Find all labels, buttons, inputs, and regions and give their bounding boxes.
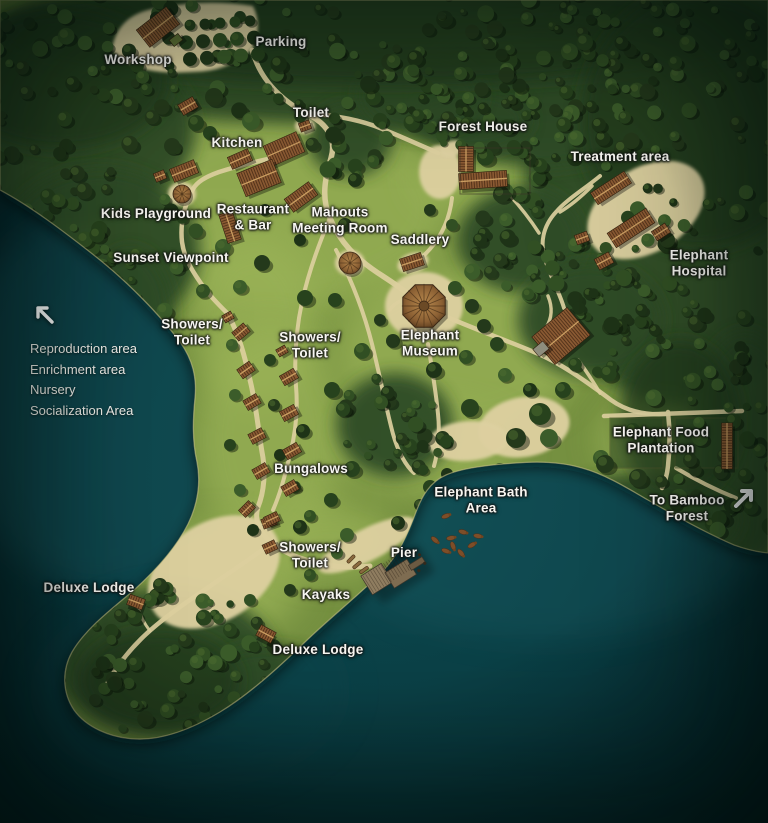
map-container: WorkshopParkingToiletKitchenForest House… [0, 0, 768, 823]
map-illustration-canvas [0, 0, 768, 823]
